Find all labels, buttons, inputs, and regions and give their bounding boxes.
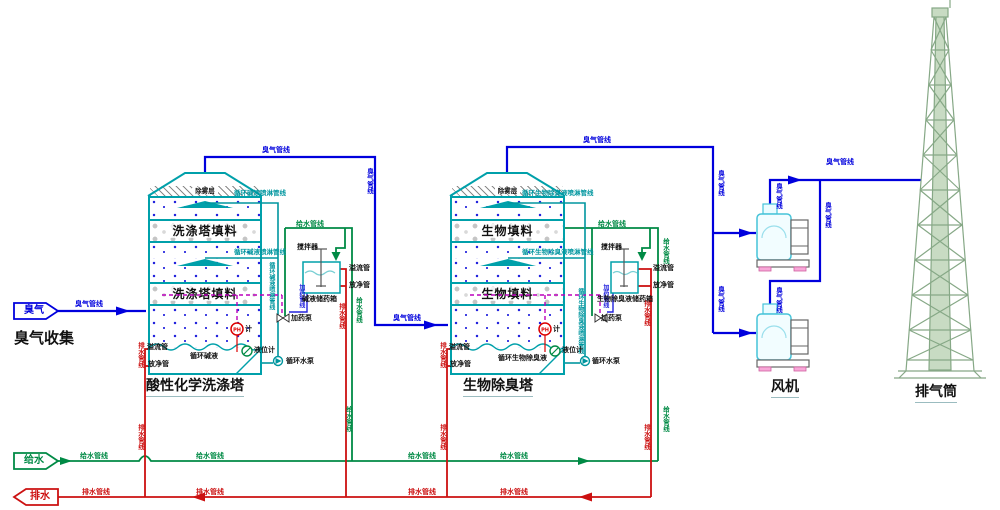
tower1-name: 酸性化学洗涤塔 bbox=[146, 379, 244, 397]
odor-badge-label: 臭气 bbox=[16, 306, 52, 316]
drain-line-label: 排水管线 bbox=[136, 342, 143, 368]
odor-line-label: 臭气管线 bbox=[583, 136, 611, 144]
supply-line-label: 给水管线 bbox=[196, 452, 224, 460]
tower1-spray-zone-2 bbox=[150, 259, 260, 282]
tower2-spray-zone-1 bbox=[452, 198, 563, 219]
supply-badge-label: 给水 bbox=[16, 456, 52, 466]
drain-line-label: 排水管线 bbox=[82, 488, 110, 496]
tower1-packing-2: 洗涤塔填料 bbox=[150, 282, 260, 306]
supply-line-label: 给水管线 bbox=[408, 452, 436, 460]
odor-line-label: 臭气管线 bbox=[393, 314, 421, 322]
odor-line-label: 臭气管线 bbox=[826, 158, 854, 166]
spray-nozzle-icon bbox=[480, 259, 536, 266]
tower2-spray-line-label: 循环生物除臭液喷淋管线 bbox=[522, 190, 594, 197]
tower2-ph-suffix-label: 计 bbox=[553, 325, 560, 333]
drain-badge-label: 排水 bbox=[22, 492, 58, 502]
stack-tower bbox=[894, 0, 986, 378]
tank2 bbox=[611, 249, 638, 293]
packing-label: 生物填料 bbox=[479, 224, 535, 238]
tower2-level-gauge-label: 液位计 bbox=[562, 346, 583, 354]
stack-name: 排气筒 bbox=[915, 385, 957, 403]
spray-nozzle-icon bbox=[177, 259, 233, 266]
tower2-packing-1: 生物填料 bbox=[452, 219, 563, 243]
circ-pump-1 bbox=[274, 357, 283, 366]
tower1-spray-line-label: 循环碱液喷淋管线 bbox=[267, 262, 274, 310]
odor-line-label: 臭气管线 bbox=[716, 170, 723, 196]
odor-line-label: 臭气管线 bbox=[262, 146, 290, 154]
tower1-drainvalve-label: 放净管 bbox=[148, 360, 169, 368]
demister-label: 除雾层 bbox=[192, 188, 218, 195]
tower2-spray-zone-2 bbox=[452, 259, 563, 282]
spray-nozzle-icon bbox=[480, 201, 536, 208]
tower1-tank-label: 碱液储药箱 bbox=[302, 295, 337, 303]
drain-line-label: 排水管线 bbox=[500, 488, 528, 496]
drain-line-label: 排水管线 bbox=[642, 424, 649, 450]
drain-line-label: 排水管线 bbox=[136, 424, 143, 450]
supply-line-label: 给水管线 bbox=[500, 452, 528, 460]
tower2-drainvalve-label: 放净管 bbox=[450, 360, 471, 368]
tower1-overflow-label: 溢流管 bbox=[147, 343, 168, 351]
odor-line-label: 臭气管线 bbox=[716, 286, 723, 312]
drain-arrows bbox=[192, 493, 592, 502]
tower2-lower-zone bbox=[452, 306, 563, 348]
tower1-tank-drain-label: 放净管 bbox=[349, 281, 370, 289]
tower1-agitator-label: 搅拌器 bbox=[297, 243, 318, 251]
tower1-dosing-pump-label: 加药泵 bbox=[291, 314, 312, 322]
supply-line-label: 给水管线 bbox=[598, 220, 626, 228]
supply-line-label: 给水管线 bbox=[661, 406, 668, 432]
supply-line-label: 给水管线 bbox=[296, 220, 324, 228]
fan-2 bbox=[757, 304, 809, 371]
drain-line-label: 排水管线 bbox=[438, 424, 445, 450]
odor-line-label: 臭气管线 bbox=[823, 202, 830, 228]
tower2-packing-2: 生物填料 bbox=[452, 282, 563, 306]
packing-label: 生物填料 bbox=[479, 287, 535, 301]
tower1-ph-suffix-label: 计 bbox=[245, 325, 252, 333]
tower2-tank-label: 生物除臭液储药箱 bbox=[597, 295, 653, 303]
tower2-agitator-label: 搅拌器 bbox=[601, 243, 622, 251]
tower2-spray-line-label: 循环生物除臭液喷淋管线 bbox=[576, 288, 583, 354]
circ-pump-2 bbox=[581, 357, 590, 366]
tower2-tank-drain-label: 放净管 bbox=[653, 281, 674, 289]
tower1-tank-overflow-label: 溢流管 bbox=[349, 264, 370, 272]
tower2-overflow-label: 溢流管 bbox=[449, 343, 470, 351]
tower1-level-gauge-label: 液位计 bbox=[254, 346, 275, 354]
tower2-circ-pump-label: 循环水泵 bbox=[592, 357, 620, 365]
tower1-sump-liquid-label: 循环碱液 bbox=[190, 352, 218, 360]
odor-line-label: 臭气管线 bbox=[75, 300, 103, 308]
supply-line-label: 给水管线 bbox=[344, 406, 351, 432]
packing-label: 洗涤塔填料 bbox=[170, 287, 239, 301]
supply-line-label: 给水管线 bbox=[661, 238, 668, 264]
odor-line-label: 臭气管线 bbox=[774, 183, 781, 209]
drain-line-label: 排水管线 bbox=[642, 300, 649, 326]
tower2-sump-liquid-label: 循环生物除臭液 bbox=[498, 354, 547, 362]
odor-collection-title: 臭气收集 bbox=[14, 330, 74, 347]
tower2-dosing-pump-label: 加药泵 bbox=[601, 314, 622, 322]
tower2-spray-line-label: 循环生物除臭液喷淋管线 bbox=[522, 249, 594, 256]
tower1-spray-line-label: 循环碱液喷淋管线 bbox=[234, 190, 286, 197]
fan-name: 风机 bbox=[771, 380, 799, 398]
odor-line-label: 臭气管线 bbox=[365, 168, 372, 194]
drain-line-label: 排水管线 bbox=[408, 488, 436, 496]
tower2-tank-overflow-label: 溢流管 bbox=[653, 264, 674, 272]
tank1 bbox=[303, 249, 340, 293]
tower1-packing-1: 洗涤塔填料 bbox=[150, 219, 260, 243]
tower1-spray-line-label: 循环碱液喷淋管线 bbox=[234, 249, 286, 256]
supply-line-label: 给水管线 bbox=[80, 452, 108, 460]
packing-label: 洗涤塔填料 bbox=[170, 224, 239, 238]
fan-1 bbox=[757, 204, 809, 271]
process-flow-diagram: 洗涤塔填料 洗涤塔填料 生物填料 生物填料 除雾层 除雾层 bbox=[0, 0, 1000, 510]
tower1-lower-zone bbox=[150, 306, 260, 348]
supply-line-label: 给水管线 bbox=[354, 297, 361, 323]
drain-line-label: 排水管线 bbox=[337, 303, 344, 329]
drain-line-label: 排水管线 bbox=[438, 342, 445, 368]
demister-label: 除雾层 bbox=[495, 188, 521, 195]
tower2-name: 生物除臭塔 bbox=[463, 379, 533, 397]
tower1-spray-zone-1 bbox=[150, 198, 260, 219]
spray-nozzle-icon bbox=[177, 201, 233, 208]
drain-line-label: 排水管线 bbox=[196, 488, 224, 496]
odor-line-label: 臭气管线 bbox=[774, 287, 781, 313]
tower1-circ-pump-label: 循环水泵 bbox=[286, 357, 314, 365]
dosing-pump-1 bbox=[277, 314, 289, 322]
